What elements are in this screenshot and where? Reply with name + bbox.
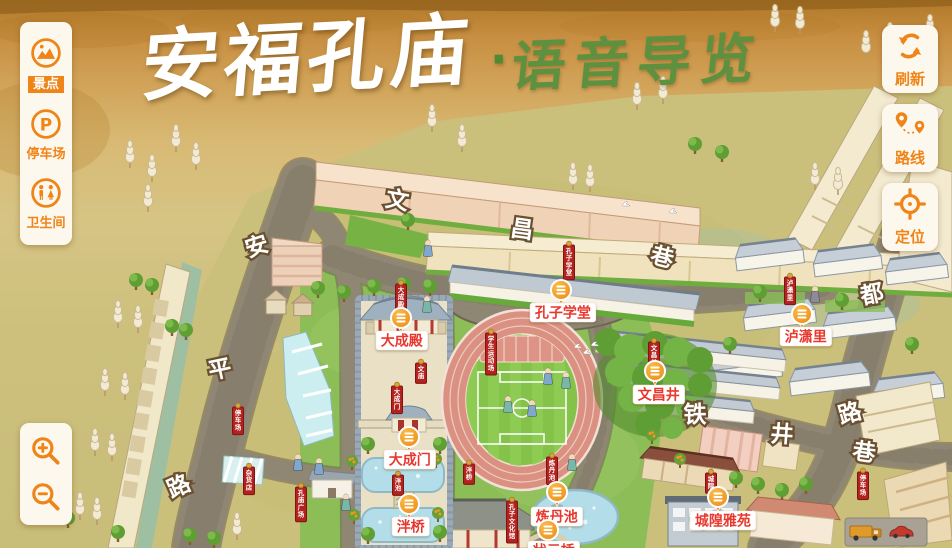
parking-icon: P — [29, 107, 63, 145]
svg-text:P: P — [40, 115, 52, 135]
sidebar: 景点 P 停车场 卫生间 — [20, 22, 72, 245]
voice-guide-map-app: 安平路文昌巷都路铁井巷 大成殿文庙大成门学生运动场孔子学堂文昌井泸潇里泮桥泮池孔… — [0, 0, 952, 548]
scenic-spot-icon — [29, 36, 63, 74]
map-banner: 停车场 — [858, 468, 869, 500]
sports-field — [442, 310, 602, 490]
map-banner: 停车场 — [233, 403, 244, 435]
map-banner: 文庙 — [416, 359, 427, 383]
svg-text:泸潇里: 泸潇里 — [785, 329, 827, 346]
poi-label[interactable]: 泸潇里 — [780, 327, 832, 346]
sidebar-item-label: 卫生间 — [26, 216, 65, 232]
zoom-out-button[interactable] — [29, 480, 63, 514]
svg-text:大成门: 大成门 — [389, 452, 431, 469]
svg-text:学生运动场: 学生运动场 — [488, 334, 495, 372]
svg-text:炼丹池: 炼丹池 — [548, 458, 556, 481]
svg-text:泸潇里: 泸潇里 — [787, 278, 794, 301]
svg-text:城隍雅苑: 城隍雅苑 — [695, 513, 751, 530]
map-banner: 孔子学堂 — [564, 241, 575, 280]
restroom-icon — [29, 176, 63, 214]
svg-text:停车场: 停车场 — [860, 473, 867, 496]
zoom-in-button[interactable] — [29, 434, 63, 468]
refresh-icon — [892, 29, 928, 67]
locate-label: 定位 — [895, 226, 925, 247]
street-name-char: 铁 — [684, 402, 707, 428]
svg-text:泮池: 泮池 — [395, 476, 402, 492]
svg-text:文昌井: 文昌井 — [638, 387, 680, 404]
zoom-controls — [20, 423, 72, 525]
poi-label[interactable]: 文昌井 — [633, 385, 685, 404]
zoom-in-icon — [29, 456, 63, 471]
sidebar-item-scenic[interactable]: 景点 — [28, 36, 64, 94]
svg-text:杂货店: 杂货店 — [245, 468, 253, 491]
svg-text:泮桥: 泮桥 — [397, 519, 426, 536]
route-icon — [892, 108, 928, 146]
street-name-char: 昌 — [509, 216, 535, 245]
poi-label[interactable]: 城隍雅苑 — [690, 511, 756, 530]
map-banner: 大成门 — [392, 382, 403, 414]
sidebar-item-restroom[interactable]: 卫生间 — [26, 176, 65, 232]
svg-text:孔子学堂: 孔子学堂 — [566, 247, 573, 277]
map-banner: 泸潇里 — [785, 273, 796, 305]
map-banner: 泮桥 — [464, 460, 475, 484]
svg-text:孔子学堂: 孔子学堂 — [535, 305, 591, 322]
svg-text:泮桥: 泮桥 — [466, 465, 473, 481]
map-banner: 泮池 — [393, 471, 404, 495]
sidebar-item-label: 景点 — [28, 76, 64, 94]
locate-icon — [892, 187, 928, 225]
poi-label[interactable]: 状元桥 — [528, 541, 580, 548]
map-banner: 大成殿 — [396, 280, 407, 312]
svg-text:状元桥: 状元桥 — [533, 543, 576, 548]
map-banner: 孔庙广场 — [296, 483, 307, 522]
map-banner: 杂货店 — [244, 463, 255, 495]
map-controls: 刷新 路线 定位 — [882, 25, 938, 251]
sidebar-item-label: 停车场 — [26, 147, 65, 163]
map-banner: 炼丹池 — [547, 453, 558, 485]
sidebar-item-parking[interactable]: P 停车场 — [26, 107, 65, 163]
svg-text:文庙: 文庙 — [417, 364, 425, 380]
poi-label[interactable]: 炼丹池 — [531, 507, 583, 526]
svg-text:大成门: 大成门 — [394, 387, 401, 410]
route-label: 路线 — [895, 147, 925, 168]
street-name-char: 巷 — [850, 438, 878, 467]
poi-label[interactable]: 大成门 — [384, 450, 436, 469]
svg-text:孔子文化馆: 孔子文化馆 — [508, 503, 516, 540]
locate-button[interactable]: 定位 — [882, 183, 938, 251]
svg-text:大成殿: 大成殿 — [381, 333, 424, 350]
refresh-label: 刷新 — [895, 68, 925, 89]
poi-label[interactable]: 泮桥 — [392, 517, 429, 536]
poi-label[interactable]: 大成殿 — [376, 331, 428, 350]
map-canvas[interactable]: 安平路文昌巷都路铁井巷 大成殿文庙大成门学生运动场孔子学堂文昌井泸潇里泮桥泮池孔… — [0, 0, 952, 548]
street-name-char: 井 — [770, 421, 795, 449]
svg-text:孔庙广场: 孔庙广场 — [298, 489, 305, 519]
poi-label[interactable]: 孔子学堂 — [530, 303, 596, 322]
map-banner: 孔子文化馆 — [507, 497, 518, 543]
svg-text:停车场: 停车场 — [235, 408, 242, 431]
refresh-button[interactable]: 刷新 — [882, 25, 938, 93]
zoom-out-icon — [29, 502, 63, 517]
svg-text:大成殿: 大成殿 — [397, 285, 405, 308]
map-banner: 学生运动场 — [486, 329, 497, 375]
route-button[interactable]: 路线 — [882, 104, 938, 172]
